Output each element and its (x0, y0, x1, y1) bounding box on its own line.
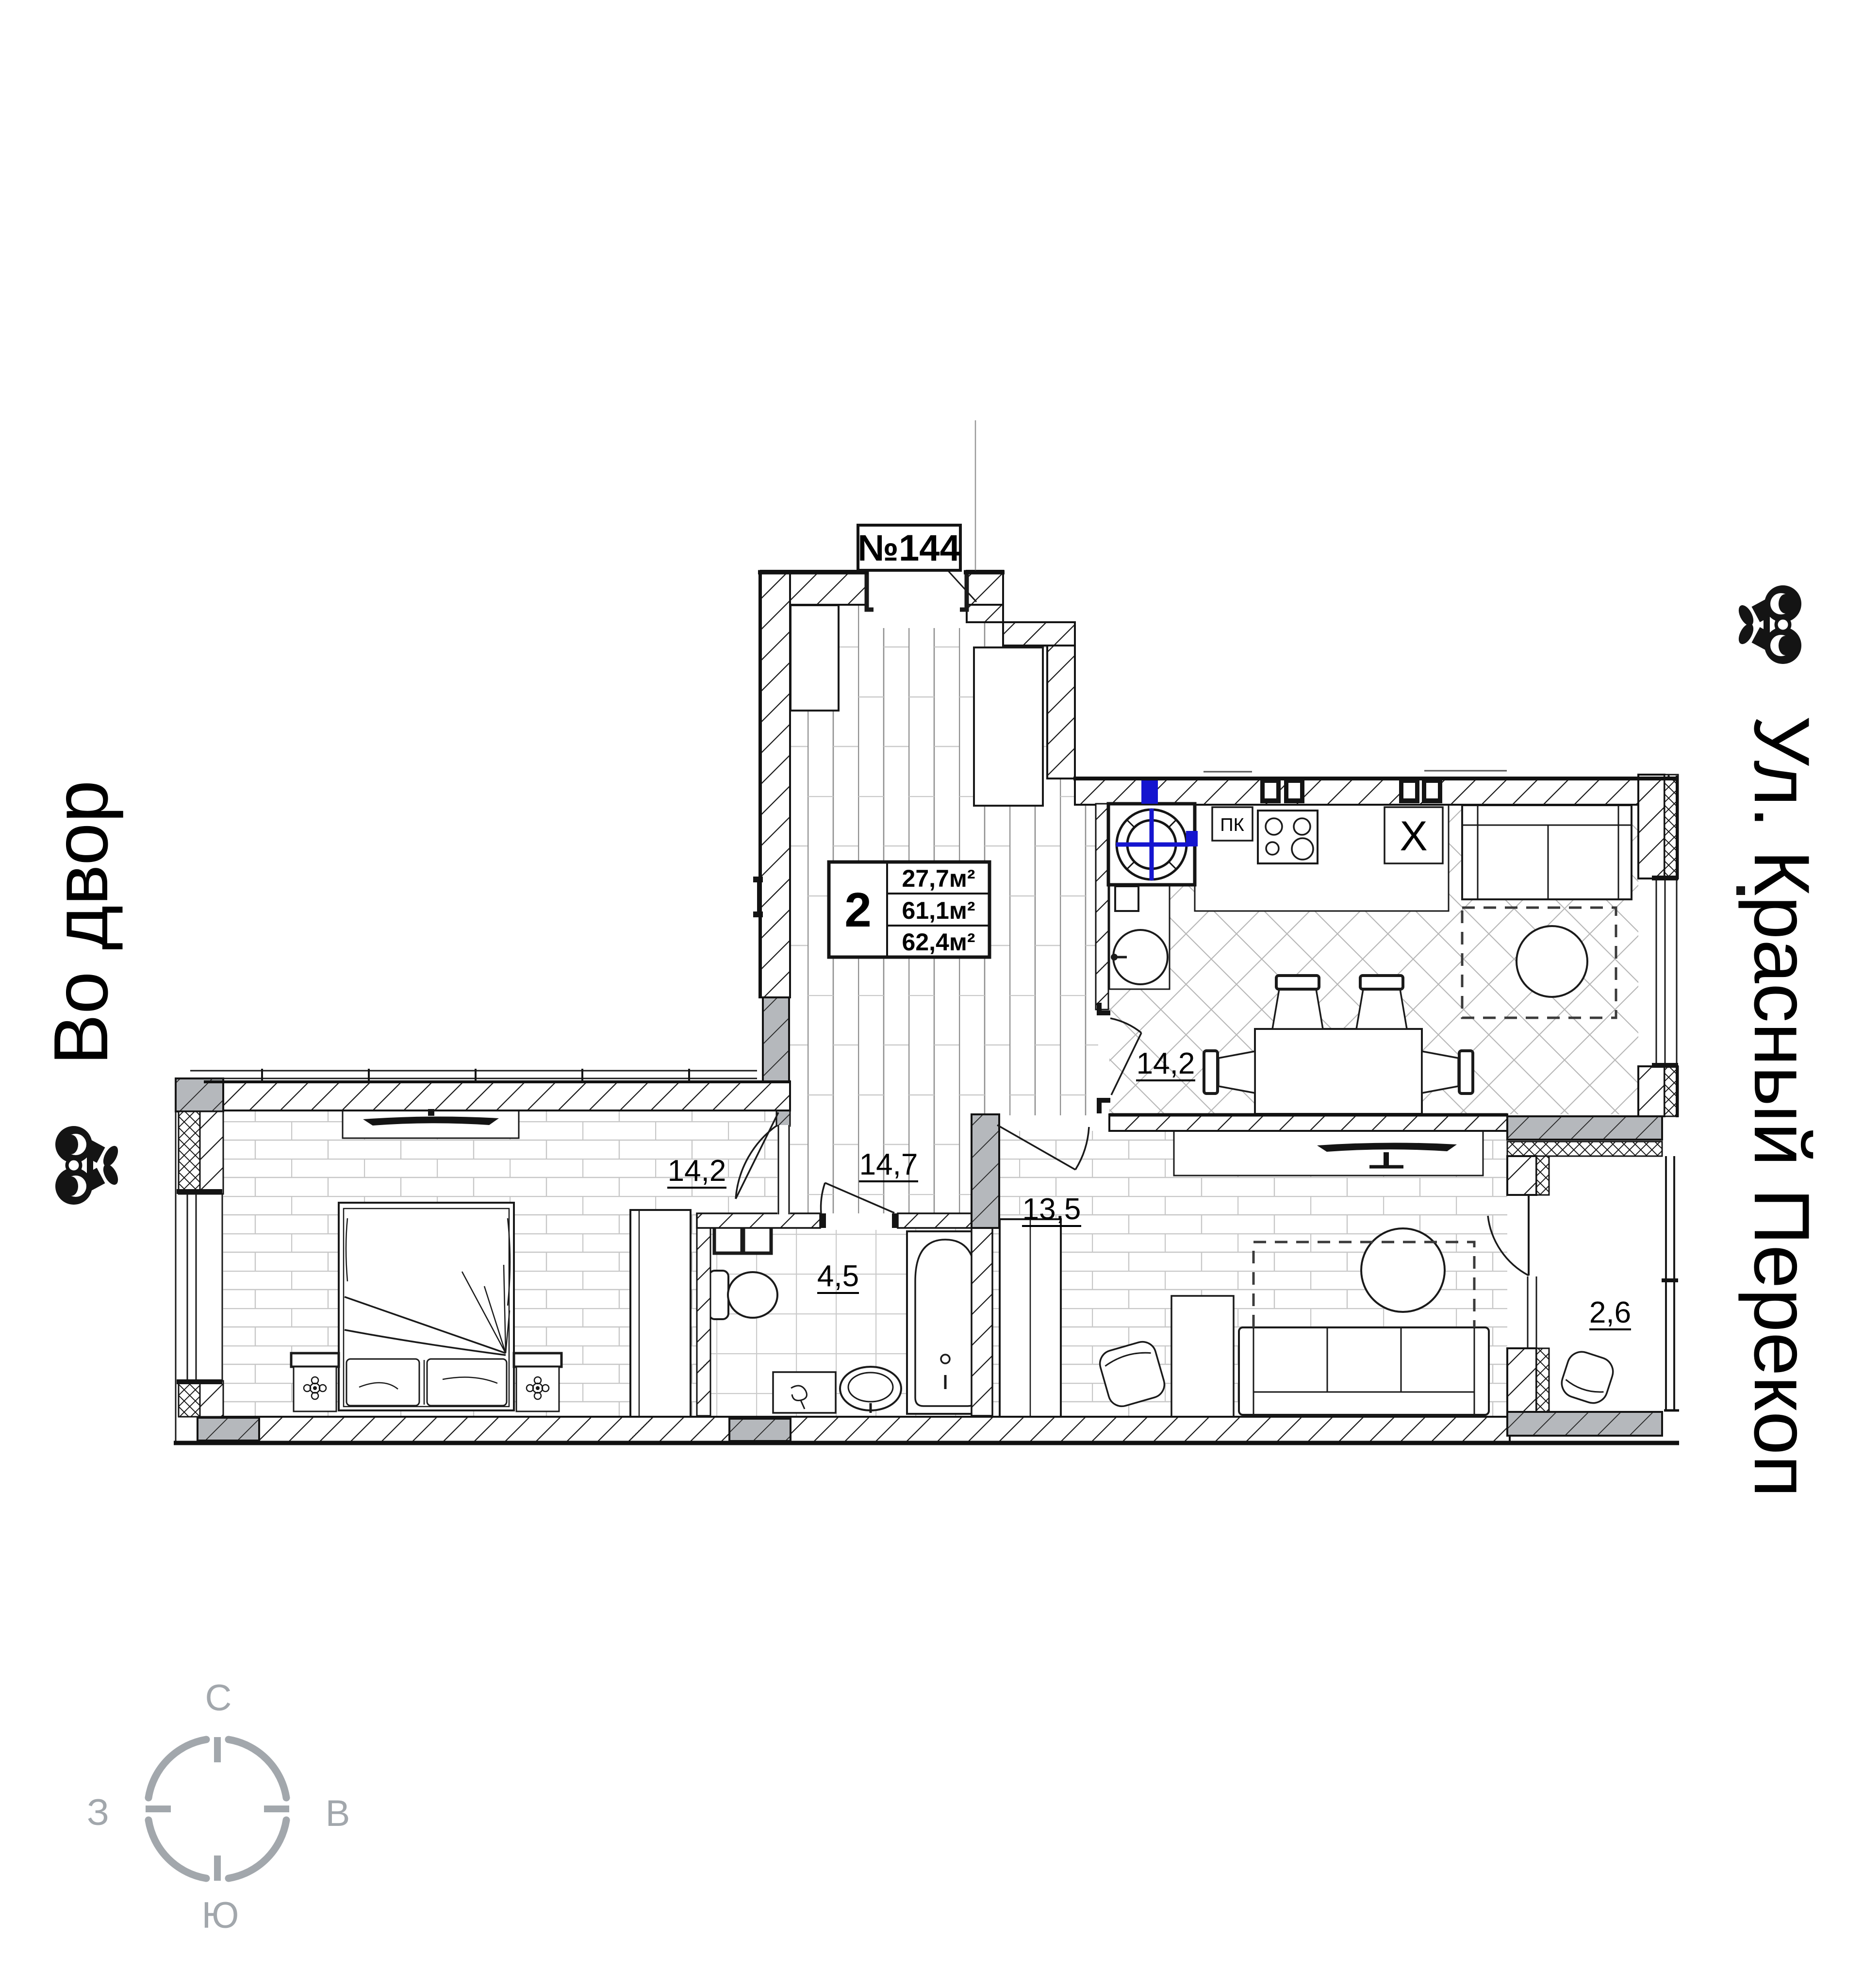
svg-text:Ул. Красный Перекоп: Ул. Красный Перекоп (1738, 716, 1826, 1498)
svg-text:С: С (205, 1677, 232, 1719)
svg-text:X: X (1400, 813, 1427, 860)
svg-text:Во двор: Во двор (38, 780, 124, 1065)
svg-text:14,2: 14,2 (1137, 1047, 1195, 1080)
svg-text:В: В (326, 1793, 350, 1834)
svg-text:ПК: ПК (1220, 815, 1244, 835)
svg-text:13,5: 13,5 (1022, 1193, 1081, 1226)
svg-text:З: З (87, 1792, 109, 1833)
svg-text:61,1м²: 61,1м² (902, 897, 975, 924)
svg-text:27,7м²: 27,7м² (902, 865, 975, 892)
svg-text:4,5: 4,5 (817, 1259, 859, 1293)
svg-text:2,6: 2,6 (1589, 1296, 1631, 1329)
svg-text:2: 2 (844, 883, 872, 937)
svg-text:14,7: 14,7 (859, 1148, 918, 1181)
svg-text:62,4м²: 62,4м² (902, 928, 975, 956)
svg-text:14,2: 14,2 (668, 1154, 726, 1188)
svg-text:№144: №144 (857, 528, 960, 569)
svg-text:Ю: Ю (202, 1895, 239, 1936)
